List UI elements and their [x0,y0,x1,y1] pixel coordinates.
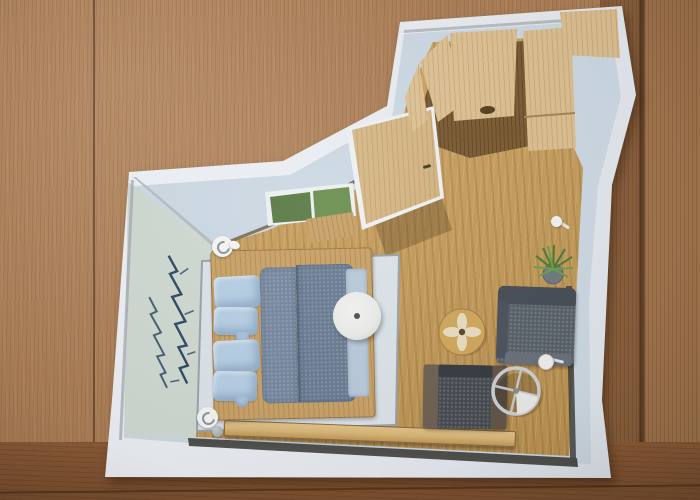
plant-leaves [536,245,572,269]
wall-hook [551,216,562,227]
armchair-back [438,365,492,378]
round-stool [437,307,487,357]
floor-lamp-bulb [538,354,554,370]
duvet-left-half [260,267,299,404]
pillow-3 [213,339,260,373]
paper-cutout-wrap [0,0,700,500]
mural-ridge-1 [164,256,191,384]
metal-side-table [489,364,545,420]
table-hub [513,388,519,394]
sconce-bottom-bulb [212,426,223,437]
floorplan-rendering [0,0,700,500]
potted-plant [528,241,578,293]
pendant-lamp-dot [354,313,360,319]
sconce-arc-2 [199,409,217,427]
mural-ridge-2 [146,297,170,388]
pillow-1 [213,275,261,310]
paper-cutout [0,0,700,500]
sofa [496,286,577,367]
wall-sconce-bottom [197,407,218,428]
sofa-arm-left [496,300,509,358]
photo-of-floorplan [0,0,700,500]
stool-flower-center [459,329,465,335]
